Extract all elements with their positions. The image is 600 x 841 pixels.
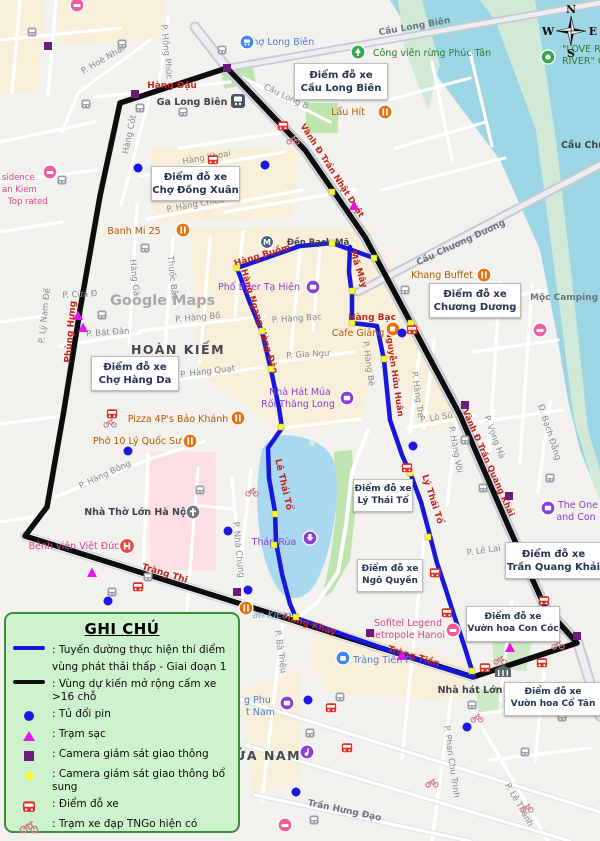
train-station-icon	[231, 94, 245, 108]
restaurant-icon	[183, 434, 197, 448]
restaurant-icon	[378, 105, 392, 119]
annotation-line1: Điểm đỗ xe	[522, 548, 585, 561]
annotation-line2: Lý Thái Tổ	[357, 496, 408, 508]
street-label-cua-dong: P. Cửa Đ	[62, 288, 98, 301]
annotation-line2: Trần Quang Khải	[507, 561, 600, 574]
place-label-ta-hien: Phố Beer Tạ Hiện	[218, 282, 300, 293]
park-tree-icon	[351, 45, 365, 59]
place-label-cho-long-bien: Chợ Long Biên	[246, 37, 315, 48]
charging-triangle-swatch	[6, 728, 52, 742]
place-label-den-bach-ma: Đền Bạch Mã	[287, 237, 350, 248]
district-label-cua-nam: ỬA NAM	[235, 747, 301, 763]
music-icon	[300, 745, 314, 759]
annotation-line2: Chợ Hàng Da	[99, 374, 172, 387]
google-watermark: Google Maps	[110, 293, 215, 309]
annotation-ngo-quyen: Điểm đỗ xe Ngô Quyền	[357, 559, 423, 592]
place-label-residence-1: sidence	[2, 173, 35, 183]
boundary-line-swatch	[6, 678, 52, 685]
attraction-icon	[541, 501, 555, 515]
tngo-bike-swatch	[6, 818, 52, 834]
camera-square-swatch	[6, 748, 52, 762]
place-label-hoan-kiem-lake: an Kiem	[253, 610, 292, 621]
annotation-vuon-hoa-con-coc: Điểm đỗ xe Vườn hoa Con Cóc	[466, 606, 560, 642]
restaurant-icon	[176, 223, 190, 237]
place-label-pizza-4ps: Pizza 4P's Bảo Khánh	[128, 414, 229, 425]
annotation-line2: Chợ Đồng Xuân	[152, 184, 239, 197]
legend-charging-label: : Trạm sạc	[52, 728, 110, 741]
route-line-swatch	[6, 644, 52, 650]
annotation-line1: Điểm đỗ xe	[362, 564, 419, 576]
legend-camera-label: : Camera giám sát giao thông	[52, 748, 213, 761]
hotel-icon	[446, 623, 460, 637]
place-label-t-nam: t Nam	[246, 707, 275, 718]
annotation-vuon-hoa-co-tan: Điểm đỗ xe Vườn hoa Cổ Tân	[504, 682, 600, 716]
compass-s: S	[567, 47, 575, 60]
restaurant-icon	[239, 601, 253, 615]
place-label-the-one-2: and Con	[556, 512, 595, 523]
annotation-line1: Điểm đỗ xe	[103, 361, 166, 374]
place-label-nha-hat-lon: Nhà hát Lớn	[438, 685, 503, 696]
legend-tngo-label: : Trạm xe đạp TNGo hiện có	[52, 818, 201, 831]
annotation-line1: Điểm đỗ xe	[355, 484, 412, 496]
hotel-icon	[533, 323, 547, 337]
place-label-banh-mi: Banh Mi 25	[107, 226, 160, 237]
restaurant-icon	[477, 268, 491, 282]
legend-route-label: : Tuyến đường thực hiện thí điểm	[52, 644, 229, 657]
annotation-line2: Chương Dương	[434, 301, 517, 314]
ngoc-son-islet	[309, 440, 315, 446]
battery-dot-swatch	[6, 708, 52, 722]
parking-bus-swatch	[6, 798, 52, 814]
attraction-icon	[306, 280, 320, 294]
legend-parking-label: : Điểm đỗ xe	[52, 798, 123, 811]
metro-letter: M	[263, 238, 271, 247]
annotation-line2: Vườn hoa Cổ Tân	[511, 699, 596, 711]
hospital-icon	[120, 539, 135, 554]
compass-w: W	[541, 25, 555, 38]
annotation-line2: Cầu Long Biên	[301, 82, 382, 95]
annotation-line1: Điểm đỗ xe	[485, 612, 542, 624]
place-label-mua-roi-1: Nhà Hát Múa	[269, 387, 331, 398]
compass-e: E	[589, 25, 597, 38]
attraction-icon	[280, 696, 294, 710]
place-label-residence-3: Top rated	[7, 197, 48, 207]
church-icon	[186, 505, 200, 519]
annotation-line1: Điểm đỗ xe	[443, 288, 506, 301]
place-label-cau-chuong-duong: Cầu Chương Dương	[561, 140, 600, 151]
place-label-cafe-giang: Cafe Giảng	[332, 328, 385, 339]
park-tree-icon	[541, 50, 555, 64]
annotation-chuong-duong: Điểm đỗ xe Chương Dương	[429, 283, 521, 318]
place-label-residence-2: an Kiem	[2, 185, 37, 195]
hotel-icon	[278, 818, 292, 832]
place-label-g-phu: g Phu	[244, 695, 271, 706]
place-label-sofitel-2: Metropole Hanoi	[367, 630, 445, 641]
extra-camera-dot-swatch	[6, 768, 52, 782]
annotation-ly-thai-to: Điểm đỗ xe Lý Thái Tổ	[353, 479, 413, 512]
place-label-pho-10: Phở 10 Lý Quốc Sư	[93, 436, 182, 447]
place-label-sofitel-1: Sofitel Legend	[374, 618, 442, 629]
metro-icon: M	[261, 236, 274, 249]
place-label-viet-duc: Bệnh viện Việt Đức	[29, 541, 120, 552]
market-cart-icon	[240, 35, 254, 49]
theater-icon	[340, 391, 354, 405]
annotation-line2: Vườn hoa Con Cóc	[467, 624, 558, 636]
compass-n: N	[566, 3, 576, 16]
annotation-line1: Điểm đỗ xe	[309, 69, 372, 82]
legend: GHI CHÚ : Tuyến đường thực hiện thí điểm…	[4, 612, 240, 833]
place-label-the-one-1: The One	[557, 500, 598, 511]
legend-boundary-label: : Vùng dự kiến mở rộng cấm xe >16 chỗ	[52, 678, 238, 704]
restaurant-icon	[231, 411, 245, 425]
place-label-moc-camping: Mộc Camping	[530, 293, 598, 303]
shopping-icon	[336, 651, 350, 665]
place-label-cong-vien-phuc-tan: Công viên rừng Phúc Tân	[373, 48, 491, 59]
thap-rua-icon	[303, 531, 317, 545]
legend-extra-camera-label: : Camera giám sát giao thông bổ sung	[52, 768, 238, 794]
legend-title: GHI CHÚ	[6, 620, 238, 638]
legend-battery-label: : Tủ đổi pin	[52, 708, 115, 721]
annotation-cho-dong-xuan: Điểm đỗ xe Chợ Đồng Xuân	[151, 166, 240, 201]
place-label-khang-buffet: Khang Buffet	[411, 270, 473, 281]
hotel-icon	[70, 0, 84, 12]
legend-route-label-line2: vùng phát thải thấp - Giai đoạn 1	[52, 661, 238, 674]
district-label-hoan-kiem: HOÀN KIẾM	[131, 341, 225, 357]
annotation-tran-quang-khai: Điểm đỗ xe Trần Quang Khải	[505, 542, 600, 579]
place-label-lau-hit: Lẩu Hít	[331, 107, 365, 118]
annotation-line1: Điểm đỗ xe	[525, 687, 582, 699]
annotation-line1: Điểm đỗ xe	[164, 171, 227, 184]
annotation-cho-hang-da: Điểm đỗ xe Chợ Hàng Da	[91, 356, 179, 391]
lez-map-figure: Hàng Đậu P. Hoè Nhai P. Hồng Phúc Hàng C…	[0, 0, 600, 841]
place-label-nha-tho-lon: Nhà Thờ Lớn Hà Nội	[84, 507, 190, 518]
place-label-ga-long-bien: Ga Long Biên	[157, 97, 228, 108]
street-label-hang-dau: Hàng Đậu	[147, 81, 197, 91]
place-label-mua-roi-2: Rối Thăng Long	[261, 399, 335, 410]
annotation-cau-long-bien: Điểm đỗ xe Cầu Long Biên	[294, 63, 388, 100]
hotel-icon	[43, 165, 57, 179]
annotation-line2: Ngô Quyền	[362, 576, 418, 588]
